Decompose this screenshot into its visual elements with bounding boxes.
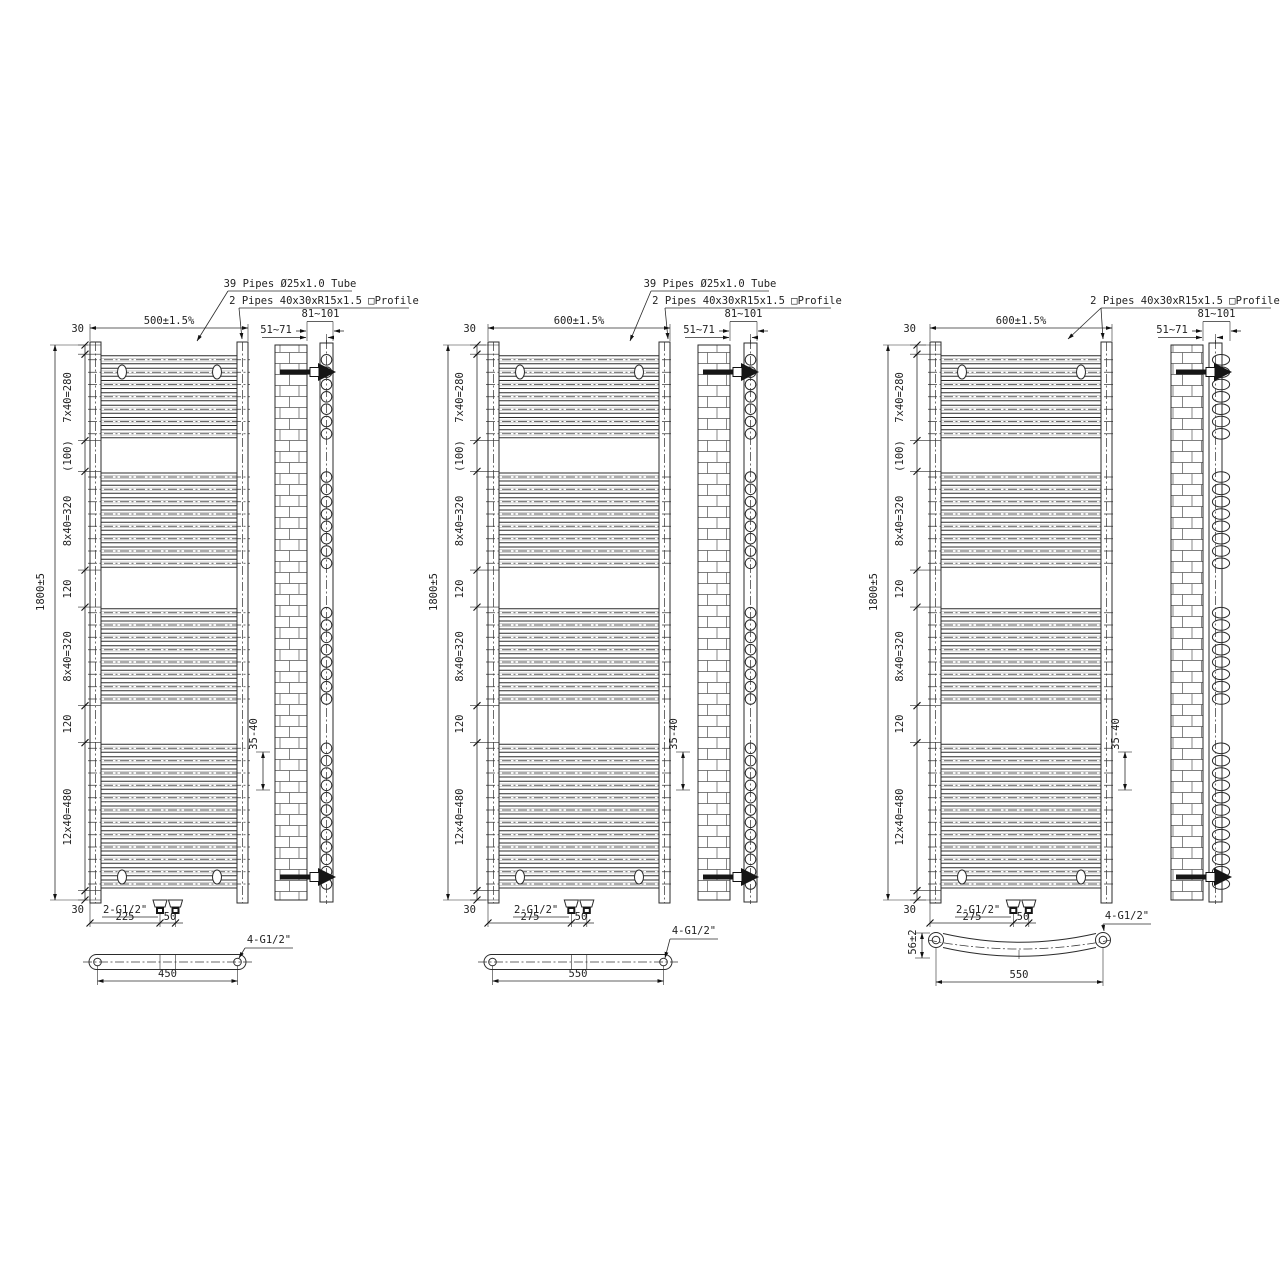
connection-span-label: 550 — [1010, 969, 1029, 981]
svg-text:12x40=480: 12x40=480 — [894, 789, 906, 846]
svg-text:7x40=280: 7x40=280 — [454, 372, 466, 423]
front-view — [486, 342, 672, 914]
bracket-max-label: 81~101 — [302, 308, 340, 320]
svg-text:(100): (100) — [454, 440, 466, 472]
svg-text:120: 120 — [62, 715, 74, 734]
svg-text:120: 120 — [454, 715, 466, 734]
wall-clearance-label: 35-40 — [1110, 718, 1122, 750]
drawing-1: 39 Pipes Ø25x1.0 Tube 2 Pipes 40x30xR15x… — [35, 278, 419, 985]
top-margin-label: 30 — [463, 323, 476, 335]
svg-text:8x40=320: 8x40=320 — [894, 496, 906, 547]
pipes-note-label: 39 Pipes Ø25x1.0 Tube — [644, 278, 777, 290]
connection-label: 4-G1/2" — [672, 925, 716, 937]
front-view — [88, 342, 250, 914]
svg-text:12x40=480: 12x40=480 — [454, 789, 466, 846]
inlet-offset-label: 275 — [963, 911, 982, 923]
front-view — [928, 342, 1114, 914]
inlet-offset-label: 225 — [116, 911, 135, 923]
width-dim-label: 600±1.5% — [996, 315, 1047, 327]
wall-clearance-label: 35-40 — [668, 718, 680, 750]
svg-text:7x40=280: 7x40=280 — [894, 372, 906, 423]
svg-text:(100): (100) — [62, 440, 74, 472]
side-view: 81~101 51~71 — [683, 308, 768, 904]
pipe-sections — [1212, 355, 1229, 890]
inlet-offset-label: 275 — [521, 911, 540, 923]
connection-span-label: 450 — [158, 968, 177, 980]
bottom-margin-label: 30 — [903, 904, 916, 916]
wall-section — [698, 345, 730, 900]
connection-label: 4-G1/2" — [1105, 910, 1149, 922]
plan-view: 550 4-G1/2" — [478, 925, 718, 985]
height-dim-label: 1800±5 — [428, 573, 440, 611]
svg-text:120: 120 — [894, 715, 906, 734]
wall-section — [1171, 345, 1203, 900]
technical-drawing-sheet: 39 Pipes Ø25x1.0 Tube 2 Pipes 40x30xR15x… — [0, 0, 1280, 1280]
pipes-note-label: 39 Pipes Ø25x1.0 Tube — [224, 278, 357, 290]
svg-text:8x40=320: 8x40=320 — [62, 631, 74, 682]
chain-ticks — [910, 342, 941, 904]
bracket-min-label: 51~71 — [683, 324, 715, 336]
svg-text:120: 120 — [454, 580, 466, 599]
radiator-drawing-svg: 39 Pipes Ø25x1.0 Tube 2 Pipes 40x30xR15x… — [0, 0, 1280, 1280]
svg-text:8x40=320: 8x40=320 — [62, 496, 74, 547]
bracket-max-label: 81~101 — [725, 308, 763, 320]
height-dim-label: 1800±5 — [868, 573, 880, 611]
side-view: 81~101 51~71 — [260, 308, 344, 904]
inlet-spacing-label: 50 — [575, 911, 588, 923]
inlet-spacing-label: 50 — [164, 911, 177, 923]
plan-view: 450 4-G1/2" — [83, 934, 293, 985]
wall-clearance-label: 35-40 — [248, 718, 260, 750]
svg-text:8x40=320: 8x40=320 — [894, 631, 906, 682]
connection-label: 4-G1/2" — [247, 934, 291, 946]
height-dim-label: 1800±5 — [35, 573, 47, 611]
drawing-2: 39 Pipes Ø25x1.0 Tube 2 Pipes 40x30xR15x… — [428, 278, 842, 985]
svg-text:120: 120 — [894, 580, 906, 599]
side-view: 81~101 51~71 — [1156, 308, 1241, 904]
bottom-margin-label: 30 — [463, 904, 476, 916]
connection-span-label: 550 — [569, 968, 588, 980]
svg-text:8x40=320: 8x40=320 — [454, 496, 466, 547]
bracket-min-label: 51~71 — [1156, 324, 1188, 336]
bracket-max-label: 81~101 — [1198, 308, 1236, 320]
svg-text:120: 120 — [62, 580, 74, 599]
bottom-margin-label: 30 — [71, 904, 84, 916]
profile-note-label: 2 Pipes 40x30xR15x1.5 □Profile — [229, 295, 419, 307]
profile-note-label: 2 Pipes 40x30xR15x1.5 □Profile — [652, 295, 842, 307]
width-dim-label: 600±1.5% — [554, 315, 605, 327]
svg-text:12x40=480: 12x40=480 — [62, 789, 74, 846]
profile-note-label: 2 Pipes 40x30xR15x1.5 □Profile — [1090, 295, 1280, 307]
top-margin-label: 30 — [71, 323, 84, 335]
svg-text:(100): (100) — [894, 440, 906, 472]
width-dim-label: 500±1.5% — [144, 315, 195, 327]
wall-section — [275, 345, 307, 900]
svg-text:7x40=280: 7x40=280 — [62, 372, 74, 423]
chain-ticks — [470, 342, 499, 904]
inlet-spacing-label: 50 — [1017, 911, 1030, 923]
svg-text:8x40=320: 8x40=320 — [454, 631, 466, 682]
drawing-3: 2 Pipes 40x30xR15x1.5 □Profile 600±1.5% … — [868, 295, 1280, 986]
bracket-min-label: 51~71 — [260, 324, 292, 336]
top-margin-label: 30 — [903, 323, 916, 335]
